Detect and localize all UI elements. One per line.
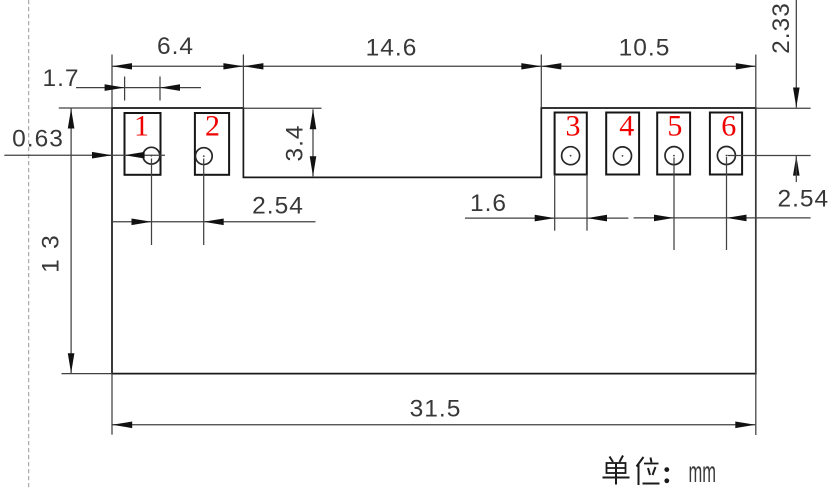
svg-text:31.5: 31.5: [410, 396, 462, 423]
svg-text:2.54: 2.54: [252, 193, 304, 220]
svg-text:6: 6: [721, 110, 736, 143]
svg-text:3.4: 3.4: [282, 124, 309, 161]
svg-text:0.63: 0.63: [12, 125, 64, 152]
svg-text:10.5: 10.5: [619, 35, 671, 62]
svg-text:1: 1: [38, 258, 65, 273]
svg-text:14.6: 14.6: [366, 35, 418, 62]
svg-text:5: 5: [667, 110, 682, 143]
svg-text:1: 1: [134, 110, 149, 143]
svg-text:2.54: 2.54: [777, 186, 829, 213]
svg-text:3: 3: [38, 234, 65, 249]
svg-text:6.4: 6.4: [157, 33, 194, 60]
svg-text:4: 4: [619, 110, 634, 143]
svg-text:3: 3: [566, 110, 581, 143]
svg-text:1.7: 1.7: [42, 65, 79, 92]
svg-text:1.6: 1.6: [470, 190, 507, 217]
svg-text:mm: mm: [689, 456, 717, 489]
svg-text:2.33: 2.33: [768, 2, 795, 54]
svg-text:2: 2: [205, 110, 220, 143]
